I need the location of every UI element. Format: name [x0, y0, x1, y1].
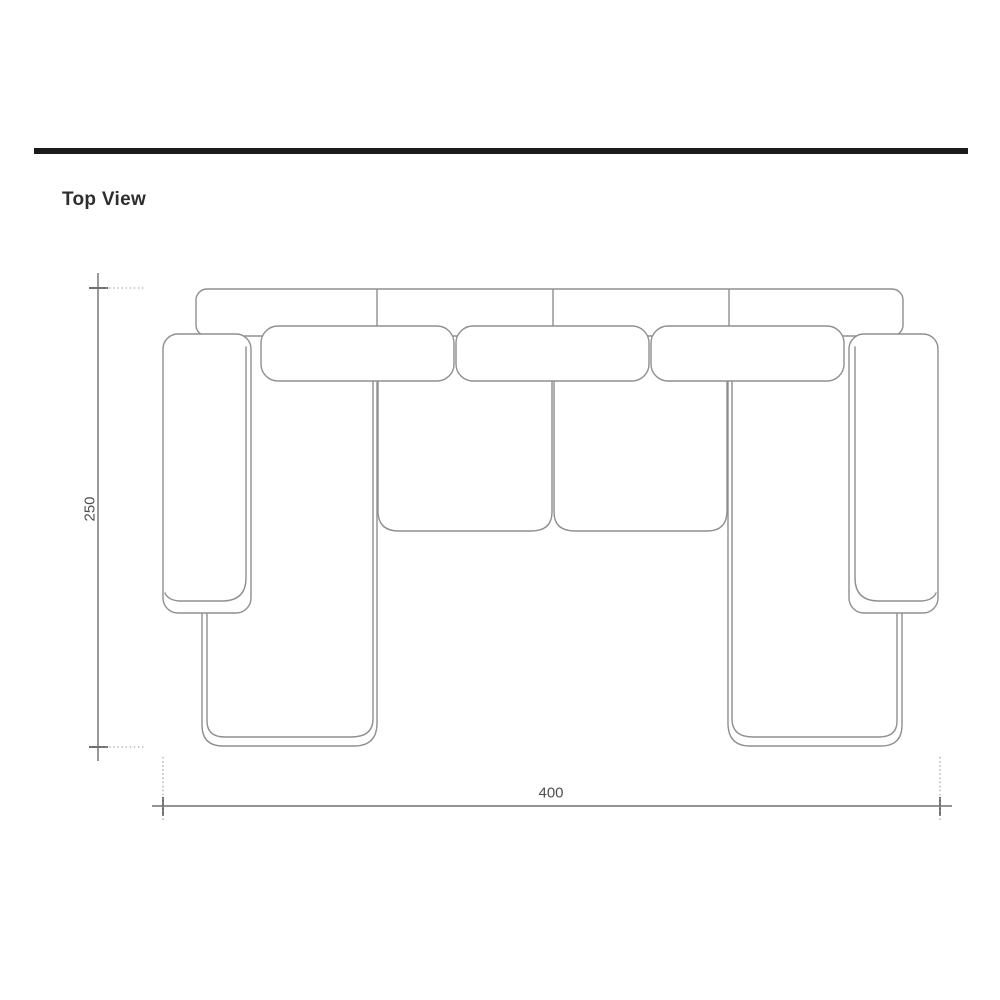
width-dimension-label: 400	[538, 785, 563, 802]
page-canvas: Top View	[0, 0, 1000, 1000]
sofa-armrest-left	[163, 334, 251, 613]
sofa-top-view-drawing	[0, 0, 1000, 1000]
sofa-seat-cushion-left	[378, 380, 552, 531]
sofa-armrest-right	[849, 334, 938, 613]
sofa-back-pillow-left	[261, 326, 454, 381]
sofa-back-pillow-center	[456, 326, 649, 381]
sofa-back-pillow-right	[651, 326, 844, 381]
sofa-seat-cushion-right	[554, 380, 727, 531]
height-dimension-label: 250	[82, 496, 99, 521]
